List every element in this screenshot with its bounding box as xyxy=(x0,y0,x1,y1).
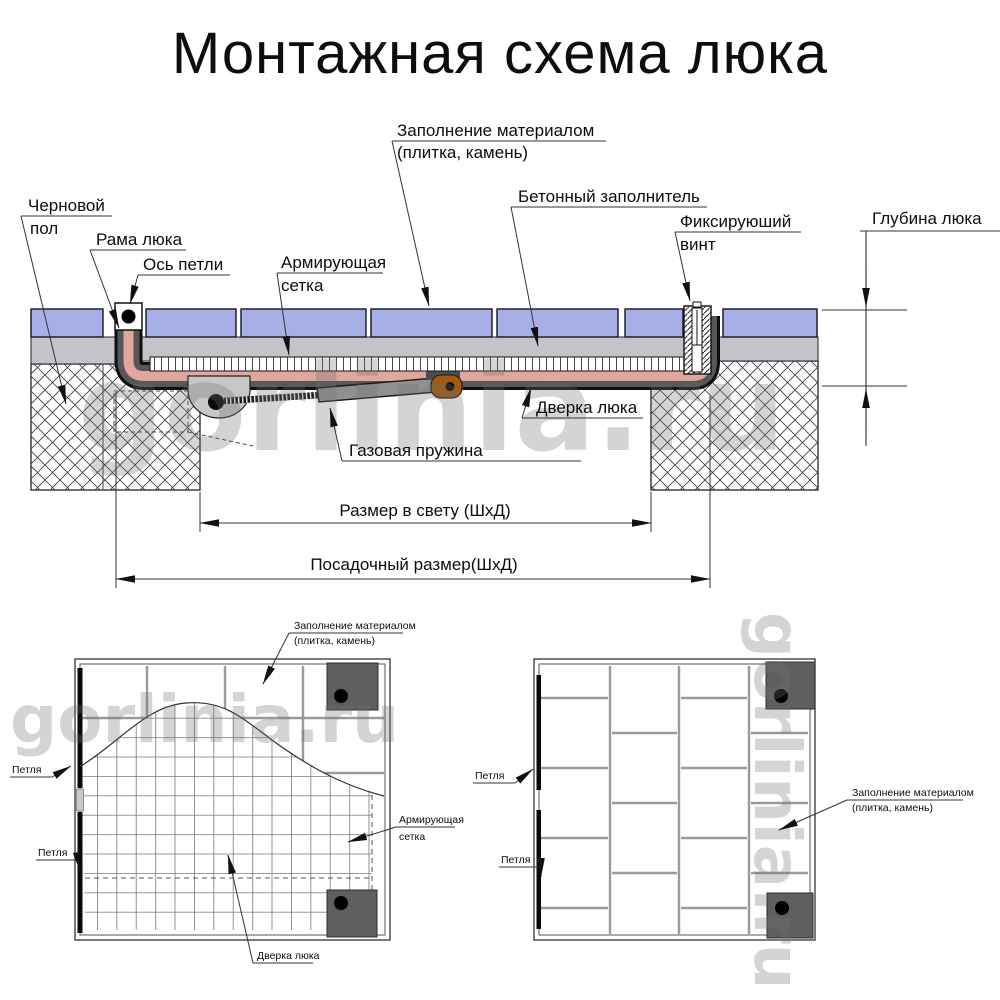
dimension-clear-size: Размер в свету (ШхД) xyxy=(200,492,651,532)
label-fixing-screw: Фиксируюший винт xyxy=(675,212,801,301)
fill-text-line2: (плитка, камень) xyxy=(397,143,528,162)
mesh-text-line1: Армирующая xyxy=(399,814,464,826)
mesh-text-line2: сетка xyxy=(281,276,324,295)
watermark-plan-right: gorlinia.ru xyxy=(739,612,813,989)
label-fill-material: Заполнение материалом (плитка, камень) xyxy=(392,121,606,306)
page: Монтажная схема люка xyxy=(0,0,1000,1000)
leader-line xyxy=(392,141,429,306)
mesh-text-line1: Армирующая xyxy=(281,253,386,272)
hinge-text: Петля xyxy=(12,764,41,776)
diagram-canvas: gorlinia.ru Черновой пол Рама люка Ось п… xyxy=(0,0,1000,1000)
hinge-text: Петля xyxy=(38,847,67,859)
clear-size-text: Размер в свету (ШхД) xyxy=(339,501,510,520)
leader-line xyxy=(130,275,138,304)
hinge-text: Петля xyxy=(475,770,504,782)
plan-right-label-hinge-top: Петля xyxy=(473,769,533,783)
plan-left-corner-plate-bottom xyxy=(327,890,377,937)
gas-spring-text: Газовая пружина xyxy=(349,441,483,460)
hinge-axis-text: Ось петли xyxy=(143,255,223,274)
door-text: Дверка люка xyxy=(257,950,320,962)
plan-left-label-hinge-top: Петля xyxy=(10,764,71,777)
rough-floor-text-line1: Черновой xyxy=(28,196,105,215)
mesh-text-line2: сетка xyxy=(399,831,425,843)
dimension-depth: Глубина люка xyxy=(822,209,1000,446)
screw-text-line1: Фиксируюший xyxy=(680,212,791,231)
watermark-plan-left: gorlinia.ru xyxy=(10,681,399,758)
hinge-text: Петля xyxy=(501,854,530,866)
fill-text-line1: Заполнение материалом xyxy=(397,121,594,140)
hinge-axis-node xyxy=(115,303,142,330)
rough-floor-text-line2: пол xyxy=(30,219,58,238)
fill-text-line2: (плитка, камень) xyxy=(294,635,375,647)
mounting-size-text: Посадочный размер(ШхД) xyxy=(310,555,517,574)
concrete-text: Бетонный заполнитель xyxy=(518,187,700,206)
door-text: Дверка люка xyxy=(536,398,638,417)
fill-text-line2: (плитка, камень) xyxy=(852,802,933,814)
screw-text-line2: винт xyxy=(680,235,716,254)
fill-text-line1: Заполнение материалом xyxy=(294,620,416,632)
fill-text-line1: Заполнение материалом xyxy=(852,787,974,799)
label-hinge-axis: Ось петли xyxy=(130,255,230,304)
frame-text: Рама люка xyxy=(96,230,183,249)
depth-text: Глубина люка xyxy=(872,209,982,228)
plan-left-label-hinge-bottom: Петля xyxy=(36,847,80,871)
